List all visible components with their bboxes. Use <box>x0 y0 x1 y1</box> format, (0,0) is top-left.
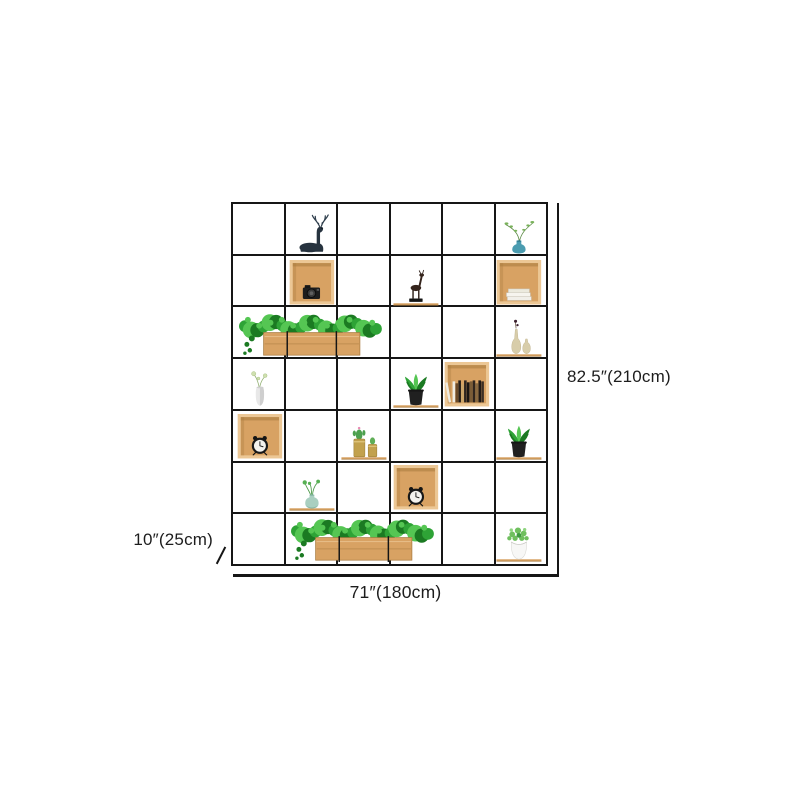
depth-dimension-label: 10″(25cm) <box>50 530 213 550</box>
planter-box-figure <box>234 307 390 358</box>
width-dimension-line <box>233 574 558 577</box>
teal-vase-branch-figure <box>493 205 545 256</box>
potted-plant-black-figure <box>493 410 545 461</box>
product-dimension-diagram: 82.5″(210cm) 71″(180cm) 10″(25cm) <box>0 0 800 800</box>
wood-box-clock-figure <box>390 461 442 512</box>
white-vase-sprigs-figure <box>234 358 286 409</box>
deer-ornament-figure <box>286 205 338 256</box>
deer-figurine-figure <box>390 256 442 307</box>
depth-dimension-tick <box>216 546 227 564</box>
wood-box-library-figure <box>441 358 493 409</box>
potted-plant-white-figure <box>493 512 545 563</box>
height-dimension-line <box>557 203 559 577</box>
wood-box-books-figure <box>493 256 545 307</box>
height-dimension-label: 82.5″(210cm) <box>567 367 671 387</box>
celadon-vase-sprouts-figure <box>286 461 338 512</box>
potted-plant-black-figure <box>390 358 442 409</box>
gold-canisters-cactus-figure <box>338 410 390 461</box>
shelf-items <box>234 205 545 563</box>
wood-box-camera-figure <box>286 256 338 307</box>
planter-box-figure <box>286 512 442 563</box>
wood-box-clock-figure <box>234 410 286 461</box>
cream-vases-figure <box>493 307 545 358</box>
shelf-grid <box>231 202 548 566</box>
width-dimension-label: 71″(180cm) <box>233 582 558 603</box>
